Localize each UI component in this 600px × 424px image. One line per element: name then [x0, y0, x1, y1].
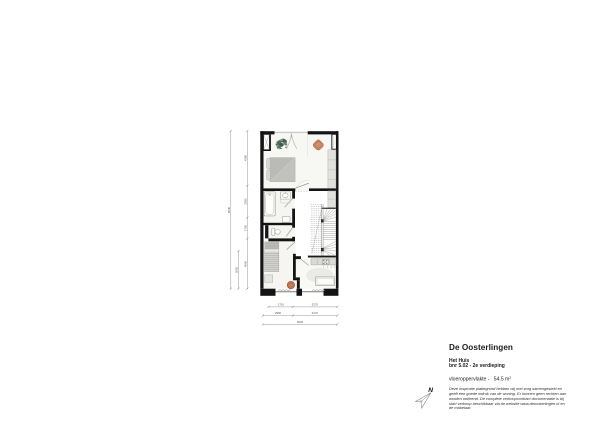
svg-text:4380: 4380 — [243, 154, 247, 161]
svg-text:2590: 2590 — [243, 198, 247, 205]
svg-text:3170: 3170 — [312, 311, 319, 315]
svg-text:1710: 1710 — [278, 302, 285, 306]
svg-text:3270: 3270 — [312, 302, 319, 306]
svg-text:9540: 9540 — [227, 206, 231, 213]
svg-text:6020: 6020 — [297, 320, 304, 324]
svg-text:3050: 3050 — [235, 266, 239, 273]
svg-text:4000: 4000 — [243, 260, 247, 267]
svg-text:N: N — [428, 387, 433, 394]
svg-text:1700: 1700 — [243, 224, 247, 231]
svg-text:2950: 2950 — [275, 311, 282, 315]
